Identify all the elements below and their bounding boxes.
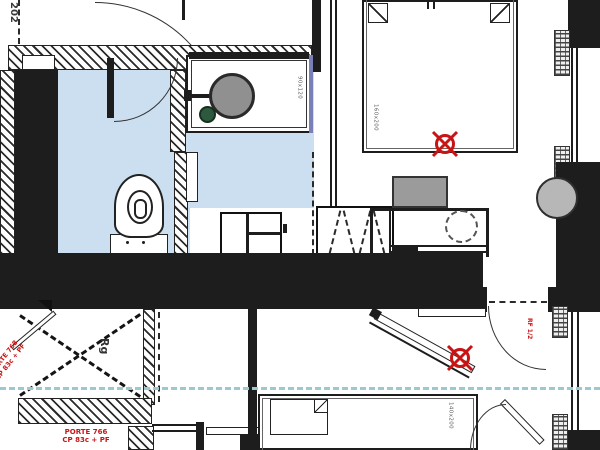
room-divider-wall: [248, 309, 257, 450]
bed-main-dim-label: 160x200: [372, 104, 378, 131]
bed-center-mark-a: [427, 0, 429, 9]
shower-glass-panel: [309, 55, 313, 133]
section-line: [0, 387, 600, 390]
desk-right-edge: [486, 208, 489, 257]
vanity-handle: [283, 224, 287, 233]
bottom-wall-hatch: [18, 398, 152, 424]
window-insulation-3: [552, 306, 568, 338]
wall-stub: [182, 0, 185, 20]
window-note-label: RF 1/2: [526, 318, 533, 339]
window-upper-frame-b: [576, 48, 578, 164]
bottomright-door-leaf: [500, 399, 545, 445]
toilet-flush: [134, 199, 147, 219]
left-wall-hatch: [0, 70, 15, 255]
corner-wall-bottomright: [568, 430, 600, 450]
stair-label: Rg: [98, 338, 111, 354]
stair-wall-hatch: [143, 309, 155, 405]
door-annotation-bottom: PORTE 766 CP 83c + PF: [44, 428, 128, 445]
band-door-arc: [488, 306, 546, 370]
left-wall-black: [15, 70, 58, 255]
desk-left-edge: [370, 208, 373, 257]
band-door-header-dashes: [489, 301, 547, 303]
bed-center-mark-b: [433, 0, 435, 9]
window-insulation-4: [552, 414, 568, 450]
desk-top-edge: [370, 208, 488, 211]
toilet-bolt-right: [142, 241, 145, 244]
door-annotation-bottom-line2: CP 83c + PF: [44, 436, 128, 444]
window-lower-frame-b: [577, 312, 579, 430]
survey-crosshair-icon: [428, 127, 462, 161]
room-divider-corner: [240, 434, 258, 450]
bed-second-dim-label: 140x200: [447, 402, 453, 429]
bath-partition-dashline: [312, 152, 314, 255]
window-insulation-1: [554, 30, 570, 76]
pillow-fold-left: [368, 3, 388, 23]
pillow-second-fold: [314, 399, 328, 413]
toilet-bolt-left: [126, 241, 129, 244]
desk-drawer-handle: [392, 246, 418, 251]
window-upper: [570, 48, 600, 164]
bedroom-wall-line-b: [335, 0, 337, 206]
shelf-horizontal: [418, 308, 486, 317]
shower-valve: [184, 90, 191, 101]
survey-crosshair-icon-2: [443, 341, 477, 375]
window-upper-frame-a: [571, 48, 573, 164]
bedroom-wall-line-a: [330, 0, 332, 206]
shower-door-track: [189, 52, 309, 59]
corner-wall-topright: [568, 0, 600, 48]
center-pillar: [312, 0, 321, 72]
door-annotation-diagonal: PORTE 768 CP 83c + PF: [0, 338, 28, 382]
chair: [392, 176, 448, 208]
pillow-fold-right: [490, 3, 510, 23]
desk-mid-line: [389, 210, 391, 257]
shower-dim-label: 90x120: [296, 76, 302, 99]
door-frame-niche: [186, 152, 198, 202]
bottom-wall-hatch-2: [128, 426, 154, 450]
reference-dashline: [18, 0, 20, 44]
bottom-door-jamb: [196, 422, 204, 450]
door-annotation-bottom-line1: PORTE 766: [44, 428, 128, 436]
column-circle: [536, 177, 578, 219]
window-lower: [568, 312, 600, 430]
vanity-shelf: [248, 232, 280, 235]
floor-drain-icon: [199, 106, 216, 123]
shower-head-icon: [209, 73, 255, 119]
floor-plan: 202 90x120 160x200: [0, 0, 600, 450]
wall-recess: [22, 55, 55, 70]
stool-dashed-circle: [445, 210, 478, 243]
bath-door-leaf: [107, 58, 114, 118]
main-wall-band: [0, 253, 483, 309]
window-lower-frame-a: [571, 312, 573, 430]
